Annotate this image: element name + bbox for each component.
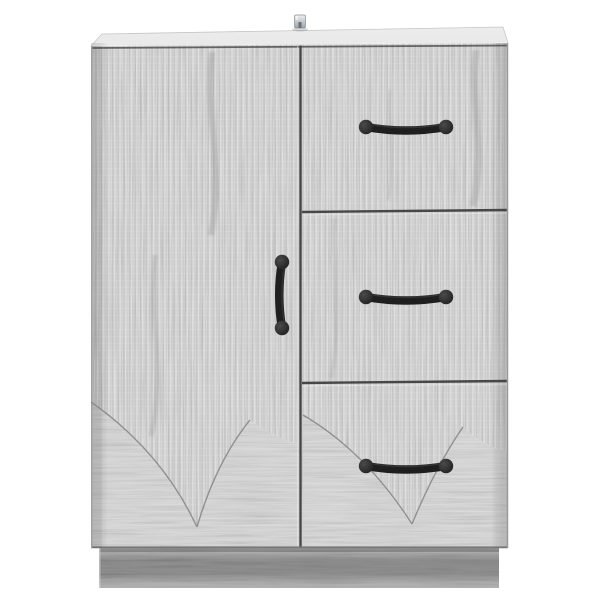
door-handle-bottom-knob (275, 321, 289, 335)
door-handle-top-knob (275, 255, 289, 269)
cabinet-illustration (0, 0, 600, 600)
plinth-base (99, 548, 499, 588)
wall-bracket-fitting (292, 15, 308, 32)
product-photo (0, 0, 600, 600)
